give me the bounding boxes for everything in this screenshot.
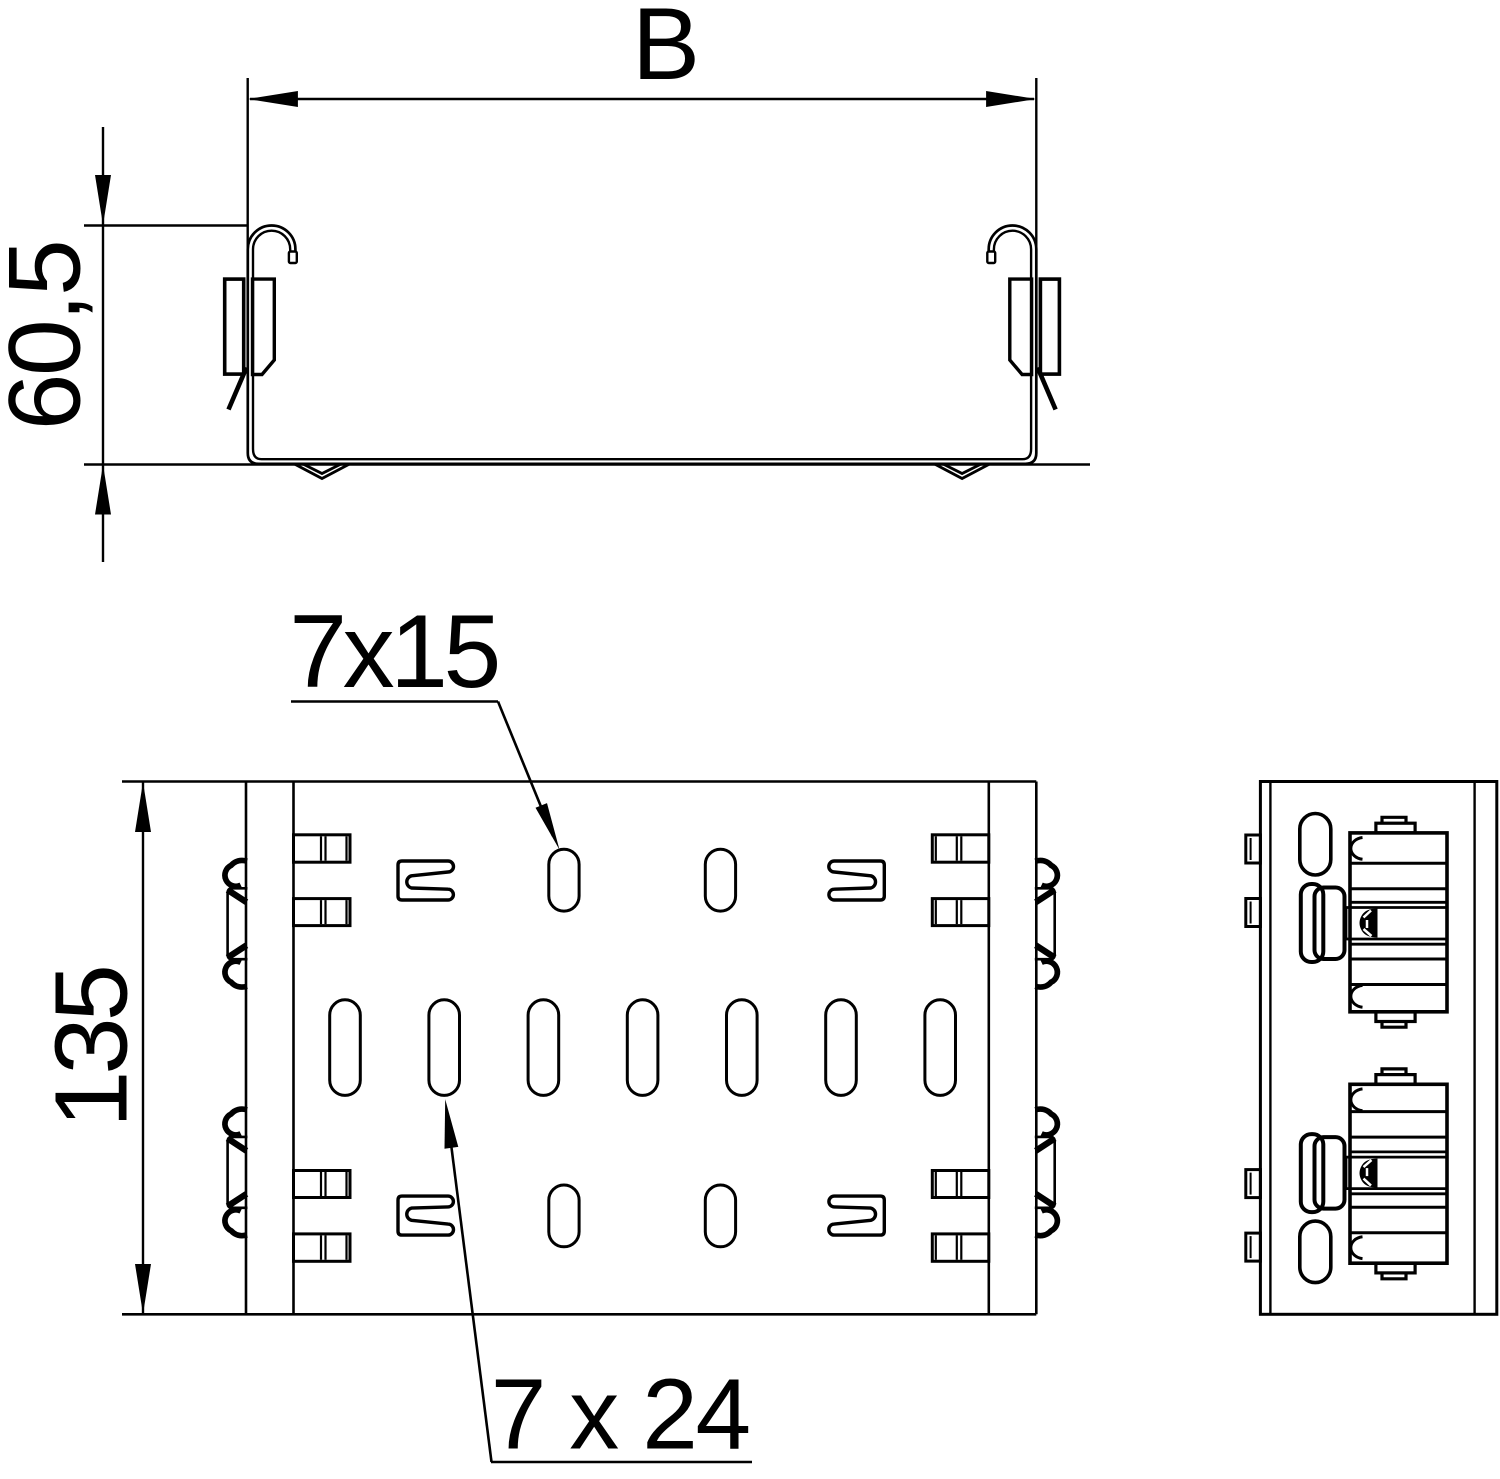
svg-text:135: 135 [34,968,149,1128]
svg-text:B: B [632,0,700,101]
svg-text:60,5: 60,5 [0,242,102,431]
svg-text:7x15: 7x15 [289,594,497,710]
svg-text:7 x 24: 7 x 24 [491,1359,749,1471]
